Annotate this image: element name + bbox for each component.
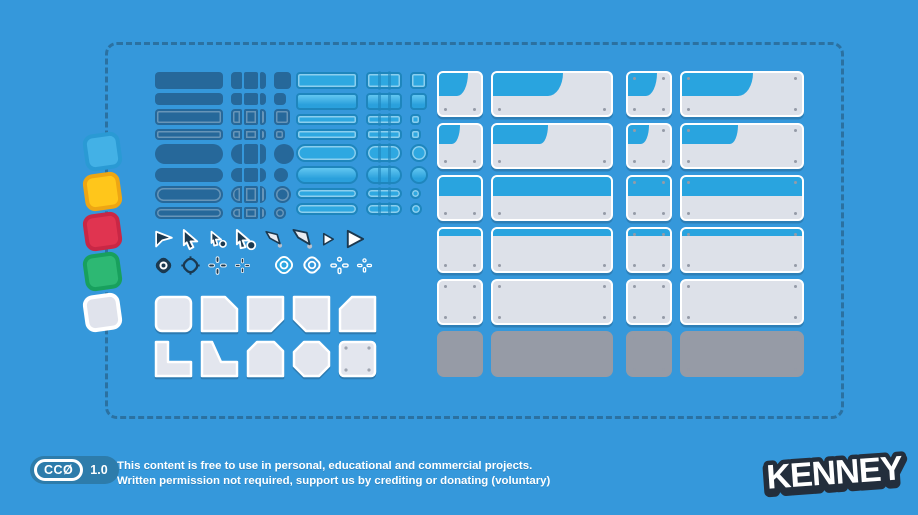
light-pill-outline-endshape: [410, 144, 428, 162]
light-rect-outline-segbar: [366, 72, 402, 89]
panel-header: [682, 177, 802, 196]
dark-pill-outline-sp-m: [244, 186, 258, 203]
dark-rect-outline-sp-m: [244, 109, 258, 125]
crosshair-ring-outline-dark-icon: [180, 255, 201, 276]
crosshair-plus-light-icon: [329, 255, 350, 276]
panel-header: [439, 125, 452, 144]
light-pill-outline-segbar: [366, 188, 402, 199]
panel-header-half-wide: [491, 175, 613, 221]
light-rect-outline-bar: [296, 72, 358, 89]
crosshair-plus-small-light-icon: [356, 257, 373, 274]
panel-tab-small-small-screws: [626, 123, 672, 169]
swatch-blue: [82, 131, 124, 173]
dark-rect-solid-endshape: [274, 72, 291, 89]
cursor-triangle-small-icon: [319, 230, 338, 250]
cursor-flag-icon: [153, 229, 175, 250]
panel-header-half-small-screws: [626, 175, 672, 221]
panel-tab-large-wide-screws: [680, 71, 804, 117]
cc0-badge: CCØ 1.0: [30, 456, 119, 484]
kenney-logo: KENNEY KENNEY: [758, 437, 910, 501]
panel-row-header-half: [437, 175, 804, 221]
dark-rect-solid-sp-r: [260, 93, 266, 105]
light-rect-outline-segbar: [366, 114, 402, 125]
panel-header-strip-small: [437, 227, 483, 273]
dark-pill-solid-sp-r: [260, 168, 266, 182]
cursor-kite-icon: [290, 228, 314, 251]
light-pill-outline-endshape: [410, 203, 422, 215]
dark-rect-solid-sp-r: [260, 72, 266, 89]
panel-grey-wide: [491, 331, 613, 377]
panel-plain-small: [437, 279, 483, 325]
dark-rect-outline-endshape: [274, 109, 290, 125]
panel-grid: [437, 71, 804, 383]
light-rect-outline-endshape: [410, 72, 427, 89]
dark-pill-outline-bar: [155, 186, 223, 203]
dark-rect-outline-sp-r: [260, 129, 266, 140]
light-pill-outline-segbar: [366, 144, 402, 162]
dark-pill-solid-sp-m: [244, 144, 258, 164]
panel-header-strip-wide-screws: [680, 227, 804, 273]
crosshair-plus-dark-icon: [207, 255, 228, 276]
panel-header: [439, 177, 481, 196]
light-buttons: [296, 72, 428, 219]
panel-header: [439, 73, 457, 96]
dark-pill-outline-endshape: [274, 207, 286, 219]
license-text: This content is free to use in personal,…: [117, 459, 550, 488]
cursor-row: [153, 228, 366, 251]
panel-plain-small-screws: [626, 279, 672, 325]
crosshair-plus-small-dark-icon: [234, 257, 251, 274]
panel-header-strip-wide: [491, 227, 613, 273]
dark-pill-outline-sp-r: [260, 186, 266, 203]
panel-grey-wide-screws: [680, 331, 804, 377]
cc0-version: 1.0: [90, 463, 107, 477]
cursor-triangle-icon: [343, 228, 366, 251]
panel-tab-large-small-screws: [626, 71, 672, 117]
dark-buttons: [155, 72, 294, 223]
crosshair-ring-outline-light-icon: [301, 254, 323, 276]
dark-pill-outline-sp-l: [231, 207, 242, 219]
panel-tab-large-wide: [491, 71, 613, 117]
dark-pill-solid-sp-l: [231, 168, 242, 182]
dark-pill-outline-sp-m: [244, 207, 258, 219]
shape-chamfer-top-both: [245, 339, 286, 379]
panel-row-plain: [437, 279, 804, 325]
shape-chamfer-top-right: [199, 294, 240, 334]
swatch-red: [82, 211, 124, 253]
panel-tab-large-small: [437, 71, 483, 117]
swatch-white: [82, 292, 124, 334]
cursor-arrow-dot-small-icon: [208, 229, 229, 250]
cc0-label: CCØ: [34, 459, 83, 481]
panel-header: [682, 229, 802, 236]
dark-rect-outline-sp-m: [244, 129, 258, 140]
dark-rect-solid-bar: [155, 72, 223, 89]
panel-grey-small-screws: [626, 331, 672, 377]
light-rect-outline-endshape: [410, 129, 421, 140]
crosshair-ring-solid-dark-icon: [153, 255, 174, 276]
panel-grey-small: [437, 331, 483, 377]
panel-header: [628, 73, 646, 96]
panel-header: [682, 125, 730, 144]
light-rect-bevel-segbar: [366, 93, 402, 110]
dark-pill-outline-sp-l: [231, 186, 242, 203]
license-line-2: Written permission not required, support…: [117, 474, 550, 489]
crosshair-row: [153, 254, 373, 276]
panel-header: [493, 125, 540, 144]
dark-rect-outline-bar: [155, 129, 223, 140]
dark-pill-outline-endshape: [274, 186, 291, 203]
panel-header: [682, 73, 738, 96]
light-rect-bevel-endshape: [410, 93, 427, 110]
dark-rect-solid-sp-l: [231, 93, 242, 105]
dark-pill-outline-bar: [155, 207, 223, 219]
license-line-1: This content is free to use in personal,…: [117, 459, 550, 474]
light-pill-bevel-bar: [296, 166, 358, 184]
panel-header: [628, 125, 641, 144]
cursor-arrow-icon: [180, 228, 203, 251]
light-pill-outline-bar: [296, 144, 358, 162]
panel-tab-small-small: [437, 123, 483, 169]
cursor-kite-small-icon: [262, 229, 285, 251]
light-pill-bevel-segbar: [366, 166, 402, 184]
panel-tab-small-wide: [491, 123, 613, 169]
shape-square-screws: [337, 339, 378, 379]
panel-plain-wide-screws: [680, 279, 804, 325]
panel-plain-wide: [491, 279, 613, 325]
dark-pill-solid-sp-m: [244, 168, 258, 182]
panel-header-half-small: [437, 175, 483, 221]
white-shape-grid: [153, 294, 379, 380]
dark-rect-outline-sp-l: [231, 129, 242, 140]
panel-row-tab-large: [437, 71, 804, 117]
dark-rect-solid-bar: [155, 93, 223, 105]
light-rect-outline-bar: [296, 114, 358, 125]
light-pill-outline-bar: [296, 203, 358, 215]
panel-tab-small-wide-screws: [680, 123, 804, 169]
panel-row-grey: [437, 331, 804, 377]
shape-chamfer-bottom-right: [245, 294, 286, 334]
dark-rect-outline-sp-l: [231, 109, 242, 125]
dark-rect-outline-sp-r: [260, 109, 266, 125]
shape-rounded-square: [153, 294, 194, 334]
crosshair-ring-solid-light-icon: [273, 254, 295, 276]
light-pill-outline-segbar: [366, 203, 402, 215]
shape-chamfer-bottom-left: [291, 294, 332, 334]
light-pill-bevel-endshape: [410, 166, 428, 184]
dark-rect-solid-endshape: [274, 93, 286, 105]
dark-pill-outline-sp-r: [260, 207, 266, 219]
light-pill-outline-endshape: [410, 188, 421, 199]
cursor-arrow-dot-icon: [234, 228, 257, 251]
panel-row-tab-small: [437, 123, 804, 169]
panel-header: [493, 73, 548, 96]
panel-row-header-strip: [437, 227, 804, 273]
panel-header: [493, 177, 611, 196]
shape-ramp: [199, 339, 240, 379]
swatch-yellow: [82, 171, 124, 213]
dark-pill-solid-endshape: [274, 144, 294, 164]
light-rect-outline-bar: [296, 129, 358, 140]
light-pill-outline-bar: [296, 188, 358, 199]
dark-pill-solid-bar: [155, 168, 223, 182]
shape-l: [153, 339, 194, 379]
dark-rect-solid-sp-l: [231, 72, 242, 89]
dark-pill-solid-sp-r: [260, 144, 266, 164]
light-rect-outline-endshape: [410, 114, 421, 125]
dark-pill-solid-bar: [155, 144, 223, 164]
panel-header-strip-small-screws: [626, 227, 672, 273]
dark-pill-solid-endshape: [274, 168, 288, 182]
shape-octagon: [291, 339, 332, 379]
asset-sheet: CCØ 1.0 This content is free to use in p…: [0, 0, 918, 515]
panel-header: [439, 229, 481, 236]
dark-rect-solid-sp-m: [244, 93, 258, 105]
dark-pill-solid-sp-l: [231, 144, 242, 164]
shape-chamfer-top-left: [337, 294, 378, 334]
panel-header-half-wide-screws: [680, 175, 804, 221]
panel-header: [493, 229, 611, 236]
dark-rect-outline-bar: [155, 109, 223, 125]
light-rect-bevel-bar: [296, 93, 358, 110]
dark-rect-outline-endshape: [274, 129, 285, 140]
swatch-green: [82, 251, 124, 293]
panel-header: [628, 177, 670, 196]
dark-rect-solid-sp-m: [244, 72, 258, 89]
light-rect-outline-segbar: [366, 129, 402, 140]
